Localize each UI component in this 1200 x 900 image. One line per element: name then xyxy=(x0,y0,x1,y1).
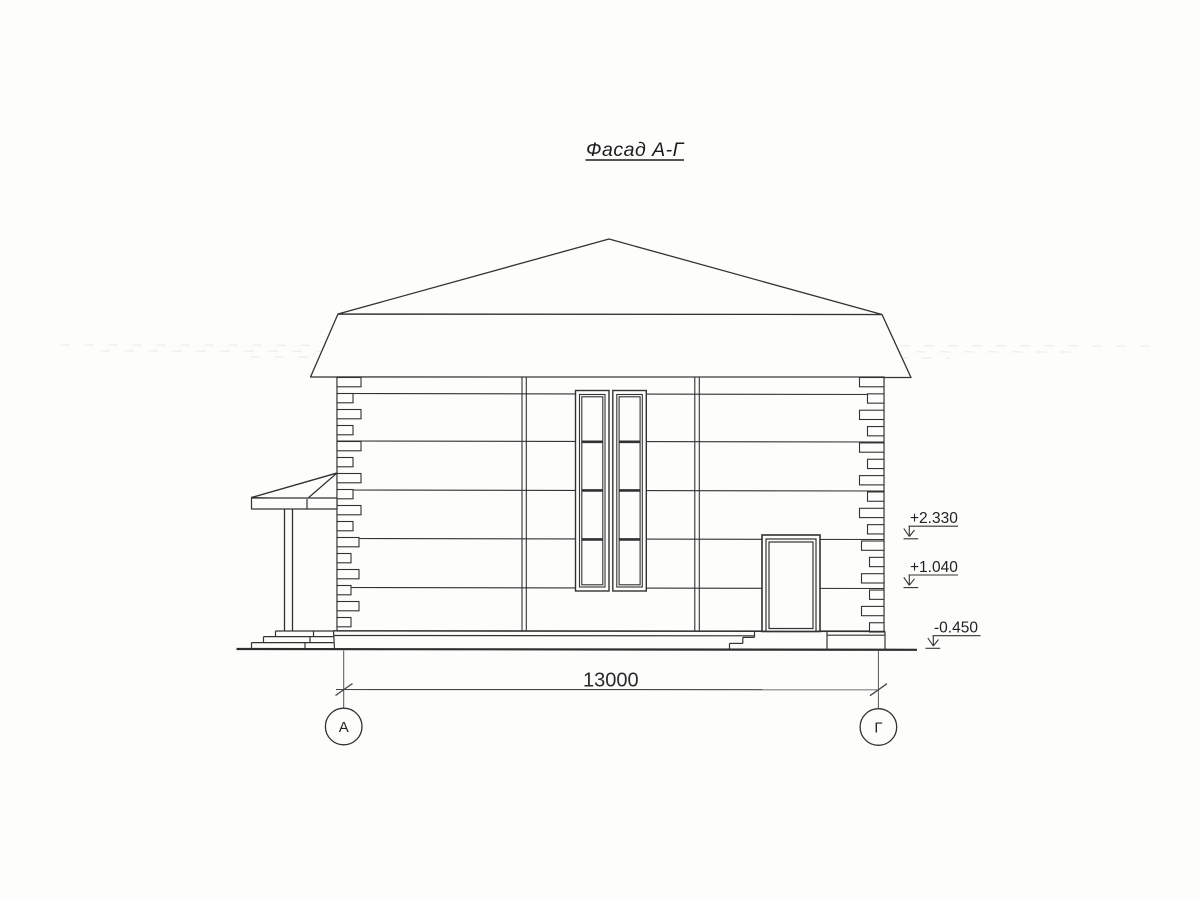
svg-text:Фасад А-Г: Фасад А-Г xyxy=(586,139,685,161)
svg-text:Г: Г xyxy=(874,720,882,737)
svg-text:+1.040: +1.040 xyxy=(910,559,958,576)
svg-text:13000: 13000 xyxy=(583,670,639,692)
svg-text:А: А xyxy=(339,719,349,736)
svg-text:-0.450: -0.450 xyxy=(934,620,978,637)
svg-text:+2.330: +2.330 xyxy=(910,510,958,527)
